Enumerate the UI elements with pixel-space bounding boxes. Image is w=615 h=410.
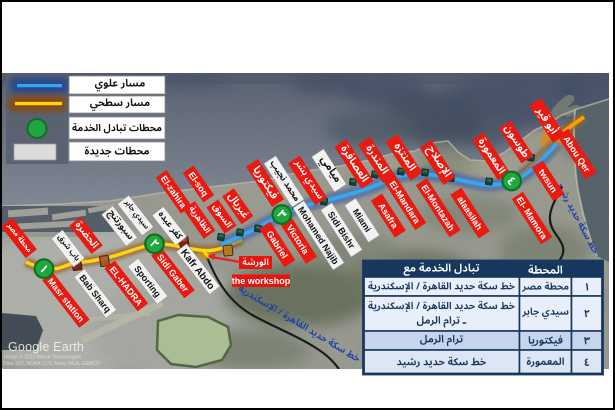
svg-text:Google Earth: Google Earth: [8, 340, 84, 354]
svg-text:the workshop: the workshop: [232, 276, 291, 286]
svg-text:Data SIO, NOAA, U.S. Navy, NGA: Data SIO, NOAA, U.S. Navy, NGA, GEBCO: [3, 361, 100, 367]
svg-text:Image © 2021 Maxar Technologie: Image © 2021 Maxar Technologies: [4, 354, 82, 361]
